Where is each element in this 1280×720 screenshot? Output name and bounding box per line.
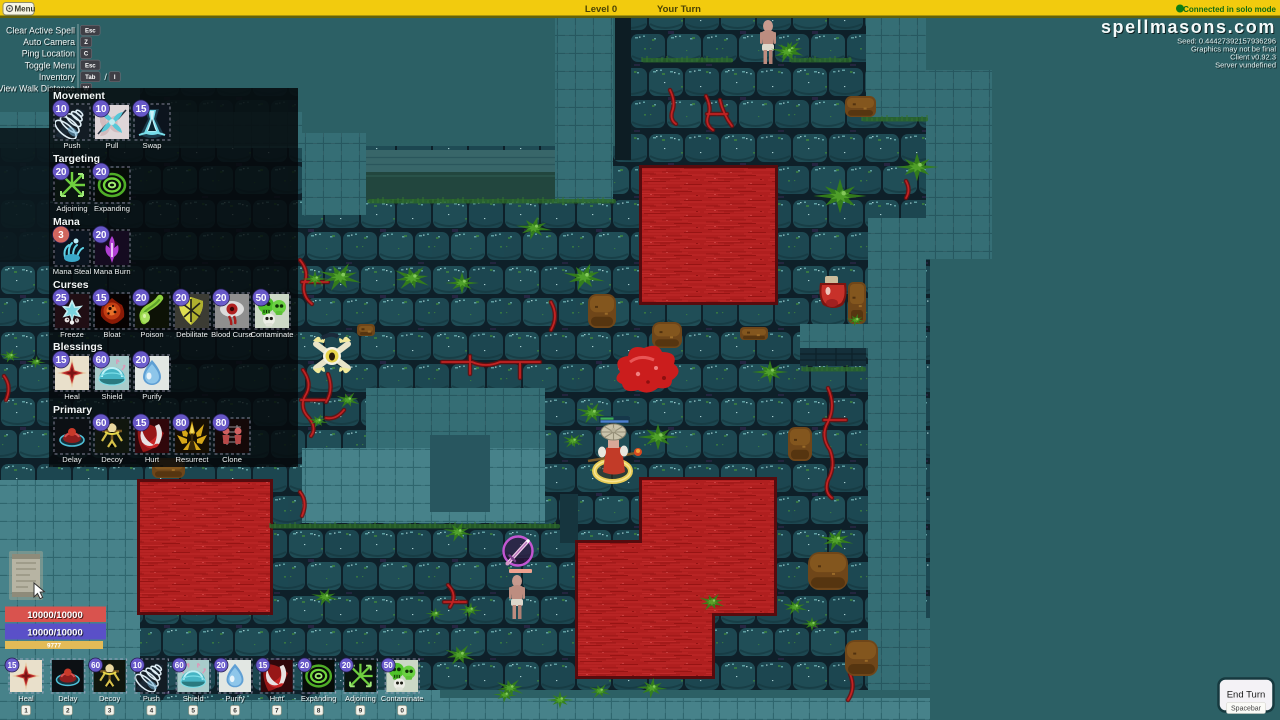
svg-text:Spacebar: Spacebar <box>1231 706 1262 713</box>
svg-text:15: 15 <box>96 293 107 304</box>
svg-text:Resurrect: Resurrect <box>176 455 210 464</box>
svg-text:Debilitate: Debilitate <box>176 330 208 339</box>
svg-text:Mana Burn: Mana Burn <box>93 267 130 276</box>
svg-text:Inventory: Inventory <box>39 72 76 82</box>
svg-text:Push: Push <box>63 141 80 150</box>
svg-text:10000/10000: 10000/10000 <box>27 610 82 621</box>
svg-text:10: 10 <box>96 104 107 115</box>
svg-text:20: 20 <box>96 167 107 178</box>
svg-text:20: 20 <box>176 293 187 304</box>
svg-text:Auto Camera: Auto Camera <box>23 37 75 47</box>
svg-text:Server vundefined: Server vundefined <box>1215 61 1276 70</box>
svg-text:Your Turn: Your Turn <box>657 4 701 15</box>
svg-text:20: 20 <box>56 167 67 178</box>
svg-text:Pull: Pull <box>106 141 119 150</box>
svg-text:10000/10000: 10000/10000 <box>27 628 82 639</box>
svg-text:Contaminate: Contaminate <box>381 694 424 703</box>
svg-text:15: 15 <box>8 661 17 670</box>
svg-text:Purify: Purify <box>225 694 244 703</box>
svg-text:Shield: Shield <box>101 392 122 401</box>
svg-text:Poison: Poison <box>140 330 163 339</box>
svg-text:Push: Push <box>143 694 160 703</box>
svg-text:0: 0 <box>400 708 404 715</box>
svg-text:6: 6 <box>233 708 237 715</box>
svg-text:15: 15 <box>136 104 147 115</box>
svg-text:Heal: Heal <box>64 392 80 401</box>
svg-text:60: 60 <box>96 355 107 366</box>
svg-text:5: 5 <box>191 708 195 715</box>
svg-text:4: 4 <box>150 708 154 715</box>
svg-text:Toggle Menu: Toggle Menu <box>25 60 75 70</box>
svg-text:Mana Steal: Mana Steal <box>53 267 92 276</box>
svg-text:Purify: Purify <box>142 392 162 401</box>
svg-text:Bloat: Bloat <box>103 330 121 339</box>
svg-text:25: 25 <box>56 293 67 304</box>
svg-text:20: 20 <box>342 661 351 670</box>
svg-text:60: 60 <box>96 418 107 429</box>
svg-text:Ping Location: Ping Location <box>22 49 75 59</box>
svg-text:Heal: Heal <box>18 694 34 703</box>
svg-text:15: 15 <box>136 418 147 429</box>
svg-text:15: 15 <box>56 355 67 366</box>
svg-text:80: 80 <box>216 418 227 429</box>
svg-text:15: 15 <box>258 661 267 670</box>
svg-text:Connected in solo mode: Connected in solo mode <box>1183 5 1276 14</box>
svg-text:8: 8 <box>317 708 321 715</box>
svg-text:60: 60 <box>91 661 100 670</box>
svg-text:10: 10 <box>133 661 142 670</box>
svg-text:60: 60 <box>175 661 184 670</box>
svg-text:Adjoining: Adjoining <box>345 694 376 703</box>
svg-text:Decoy: Decoy <box>101 455 123 464</box>
svg-text:Z: Z <box>84 40 88 46</box>
svg-text:Contaminate: Contaminate <box>250 330 293 339</box>
svg-text:Clear Active Spell: Clear Active Spell <box>6 26 75 36</box>
svg-text:20: 20 <box>96 230 107 241</box>
svg-text:Esc: Esc <box>85 29 96 35</box>
svg-text:10: 10 <box>56 104 67 115</box>
svg-text:20: 20 <box>136 293 147 304</box>
svg-text:20: 20 <box>300 661 309 670</box>
svg-text:20: 20 <box>217 661 226 670</box>
svg-text:Delay: Delay <box>58 694 77 703</box>
svg-text:Hurt: Hurt <box>270 694 285 703</box>
svg-text:Mana: Mana <box>53 216 80 228</box>
svg-text:Hurt: Hurt <box>145 455 160 464</box>
svg-text:9777: 9777 <box>47 643 62 650</box>
svg-text:Esc: Esc <box>85 63 96 69</box>
svg-text:End Turn: End Turn <box>1227 690 1266 701</box>
svg-text:Swap: Swap <box>143 141 162 150</box>
svg-text:1: 1 <box>24 708 28 715</box>
svg-text:3: 3 <box>58 230 64 241</box>
svg-text:80: 80 <box>176 418 187 429</box>
svg-text:20: 20 <box>136 355 147 366</box>
svg-text:Expanding: Expanding <box>94 204 130 213</box>
svg-text:7: 7 <box>275 708 279 715</box>
svg-text:Delay: Delay <box>62 455 82 464</box>
svg-text:50: 50 <box>384 661 393 670</box>
svg-text:Level 0: Level 0 <box>585 4 617 15</box>
svg-text:Expanding: Expanding <box>301 694 336 703</box>
svg-text:Menu: Menu <box>15 5 36 14</box>
svg-text:50: 50 <box>256 293 267 304</box>
svg-text:Primary: Primary <box>53 404 92 416</box>
svg-text:Blood Curse: Blood Curse <box>211 330 253 339</box>
svg-text:2: 2 <box>66 708 70 715</box>
svg-text:Decoy: Decoy <box>99 694 121 703</box>
svg-text:Clone: Clone <box>222 455 242 464</box>
svg-text:Freeze: Freeze <box>60 330 84 339</box>
svg-text:20: 20 <box>216 293 227 304</box>
svg-text:Shield: Shield <box>183 694 204 703</box>
svg-text:C: C <box>84 52 89 58</box>
svg-text:9: 9 <box>359 708 363 715</box>
svg-text:spellmasons.com: spellmasons.com <box>1101 17 1276 37</box>
svg-text:3: 3 <box>108 708 112 715</box>
svg-text:Tab: Tab <box>85 75 96 81</box>
svg-text:Adjoining: Adjoining <box>56 204 87 213</box>
